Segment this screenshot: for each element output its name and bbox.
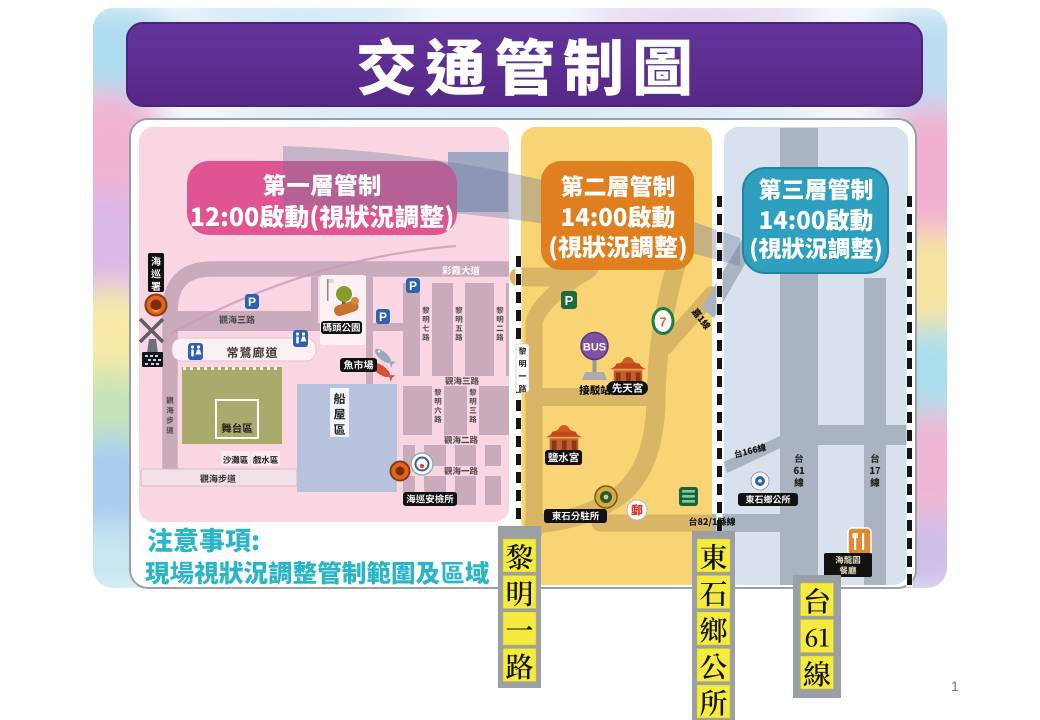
svg-text:P: P bbox=[248, 295, 256, 309]
svg-text:P: P bbox=[379, 310, 387, 324]
svg-text:P: P bbox=[565, 293, 574, 308]
svg-text:BUS: BUS bbox=[583, 342, 606, 354]
svg-text:P: P bbox=[409, 279, 417, 293]
svg-text:7: 7 bbox=[659, 315, 666, 330]
svg-text:1: 1 bbox=[951, 678, 959, 694]
